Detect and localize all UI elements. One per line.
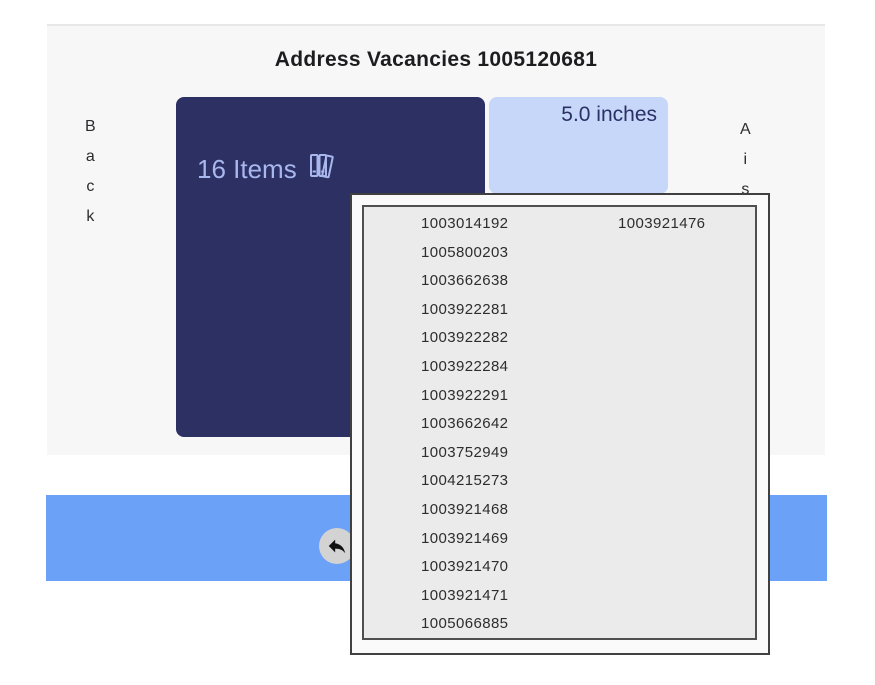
item-number[interactable]: 1003922282 [421,324,508,353]
list-item: 1003921468 [364,496,755,525]
item-number[interactable]: 1003921476 [618,210,705,239]
list-item: 1003752949 [364,439,755,468]
item-number[interactable]: 1003922284 [421,353,508,382]
list-item: 1003921470 [364,553,755,582]
list-item: 1003922281 [364,296,755,325]
vacancy-label: 5.0 inches [489,97,668,127]
item-number[interactable]: 1003014192 [421,210,508,239]
item-number[interactable]: 1004215273 [421,467,508,496]
vacancy-list: 1003014192100392147610058002031003662638… [362,205,757,640]
items-card-label: 16 Items [197,154,297,185]
item-number[interactable]: 1003921470 [421,553,508,582]
back-letter: c [86,178,94,196]
item-number[interactable]: 1003921468 [421,496,508,525]
page-title: Address Vacancies 1005120681 [47,48,825,72]
aisle-letter: A [740,121,751,139]
books-icon [308,152,336,187]
list-item: 1003921469 [364,525,755,554]
vacancy-card[interactable]: 5.0 inches [489,97,668,194]
back-letter: a [86,148,95,166]
list-item: 1003922291 [364,382,755,411]
item-number[interactable]: 1003752949 [421,439,508,468]
item-number[interactable]: 1005066885 [421,610,508,639]
item-number[interactable]: 1005800203 [421,239,508,268]
item-number[interactable]: 1003662642 [421,410,508,439]
item-number[interactable]: 1003921469 [421,525,508,554]
item-number[interactable]: 1003922281 [421,296,508,325]
list-item: 1003662642 [364,410,755,439]
list-item: 1005800203 [364,239,755,268]
list-item: 1003662638 [364,267,755,296]
list-item: 1003922282 [364,324,755,353]
back-nav-label[interactable]: B a c k [85,118,96,226]
vacancy-popup: 1003014192100392147610058002031003662638… [350,193,770,655]
list-item: 1003922284 [364,353,755,382]
list-item: 1004215273 [364,467,755,496]
back-letter: B [85,118,96,136]
aisle-letter: i [744,151,748,169]
item-number[interactable]: 1003662638 [421,267,508,296]
item-number[interactable]: 1003922291 [421,382,508,411]
screen: Address Vacancies 1005120681 B a c k A i… [0,0,875,685]
back-letter: k [86,208,94,226]
item-number[interactable]: 1003921471 [421,582,508,611]
list-item: 10030141921003921476 [364,210,755,239]
list-item: 1005066885 [364,610,755,639]
reply-arrow-icon [326,535,348,557]
list-item: 1003921471 [364,582,755,611]
